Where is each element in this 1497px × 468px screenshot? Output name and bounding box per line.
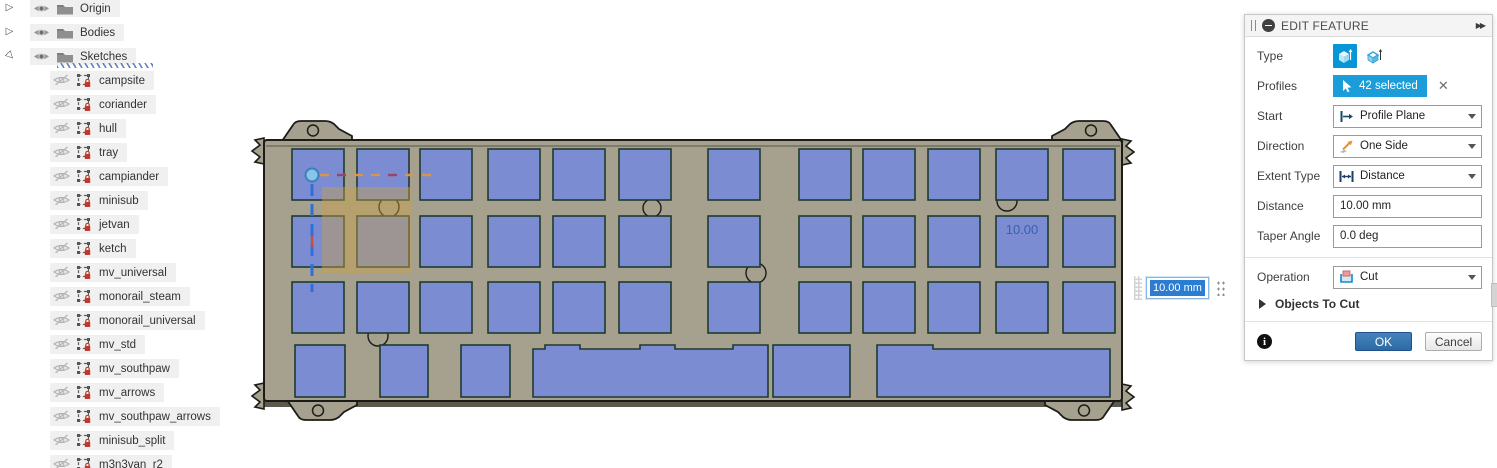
drag-handle-icon[interactable]	[1134, 276, 1142, 300]
sketch-icon	[76, 73, 93, 88]
hover-highlight-overlay	[322, 187, 412, 274]
field-profiles: Profiles 42 selected ✕	[1257, 75, 1482, 97]
tab-hole	[313, 405, 324, 416]
sketch-icon	[76, 121, 93, 136]
dimension-input-value: 10.00 mm	[1150, 280, 1205, 296]
tree-item-campsite[interactable]: campsite	[0, 68, 250, 92]
expand-panel-icon[interactable]: ▶▶	[1476, 21, 1486, 30]
tree-item-ketch[interactable]: ketch	[0, 236, 250, 260]
sketch-icon	[76, 313, 93, 328]
field-label: Type	[1257, 49, 1333, 63]
clear-selection-icon[interactable]: ✕	[1438, 78, 1449, 94]
visibility-off-icon[interactable]	[53, 170, 70, 182]
tree-item-label: mv_universal	[99, 266, 167, 279]
sketch-icon	[76, 457, 93, 468]
dialog-footer: i OK Cancel	[1257, 332, 1482, 351]
tab-hole	[1086, 125, 1097, 136]
select-value: Profile Plane	[1360, 110, 1425, 122]
profile-plane-icon	[1339, 110, 1354, 123]
tree-item-tray[interactable]: tray	[0, 140, 250, 164]
select-value: Distance	[1360, 170, 1405, 182]
taper-angle-input[interactable]: 0.0 deg	[1333, 225, 1482, 248]
sketch-icon	[76, 145, 93, 160]
switch-cutout[interactable]	[996, 282, 1048, 333]
grip-icon[interactable]	[1251, 20, 1256, 31]
sketch-icon	[76, 193, 93, 208]
sketch-icon	[76, 337, 93, 352]
switch-cutout[interactable]	[996, 149, 1048, 200]
visibility-off-icon[interactable]	[53, 98, 70, 110]
select-value: Cut	[1360, 271, 1378, 283]
tree-item-label: mv_std	[99, 338, 136, 351]
select-value: One Side	[1360, 140, 1408, 152]
tree-item-label: monorail_universal	[99, 314, 196, 327]
field-type: Type	[1257, 45, 1482, 67]
tree-item-minisub_split[interactable]: minisub_split	[0, 428, 250, 452]
tree-item-label: Sketches	[80, 50, 127, 63]
edit-feature-dialog: EDIT FEATURE ▶▶ Type Profiles 42 selecte…	[1244, 14, 1493, 361]
tree-item-sketches[interactable]: ▷ Sketches	[0, 44, 250, 68]
bottom-cutout[interactable]	[533, 345, 768, 397]
visibility-off-icon[interactable]	[53, 314, 70, 326]
screen-edge-tab[interactable]	[1491, 283, 1497, 307]
chevron-down-icon	[1468, 144, 1476, 149]
switch-cutout[interactable]	[863, 216, 915, 267]
plate-side-clip	[1122, 139, 1134, 165]
tree-item-label: campiander	[99, 170, 159, 183]
switch-cutout[interactable]	[553, 216, 605, 267]
tree-item-label: ketch	[99, 242, 127, 255]
chevron-down-icon	[1468, 114, 1476, 119]
more-options-handle-icon[interactable]	[1216, 280, 1226, 296]
visibility-on-icon[interactable]	[33, 27, 50, 38]
tree-item-m3n3van_r2[interactable]: m3n3van_r2	[0, 452, 250, 468]
folder-icon	[56, 2, 74, 15]
dimension-input[interactable]: 10.00 mm	[1146, 277, 1209, 299]
section-expander-icon	[1259, 299, 1266, 309]
switch-cutout[interactable]	[799, 149, 851, 200]
extrude-thin-icon[interactable]	[1362, 44, 1386, 68]
switch-cutout[interactable]	[420, 216, 472, 267]
tree-item-mv_southpaw_arrows[interactable]: mv_southpaw_arrows	[0, 404, 250, 428]
tree-item-mv_std[interactable]: mv_std	[0, 332, 250, 356]
distance-input[interactable]: 10.00 mm	[1333, 195, 1482, 218]
sketch-icon	[76, 241, 93, 256]
bottom-cutout[interactable]	[461, 345, 510, 397]
tree-item-label: monorail_steam	[99, 290, 181, 303]
sketch-icon	[76, 97, 93, 112]
tree-item-label: coriander	[99, 98, 147, 111]
chevron-down-icon	[1468, 174, 1476, 179]
dialog-header[interactable]: EDIT FEATURE ▶▶	[1245, 15, 1492, 37]
switch-cutout[interactable]	[863, 282, 915, 333]
cut-icon	[1339, 270, 1354, 284]
switch-cutout[interactable]	[1063, 216, 1115, 267]
switch-cutout[interactable]	[928, 282, 980, 333]
tree-item-label: Origin	[80, 2, 111, 15]
plate-side-clip	[1122, 384, 1134, 410]
tree-item-label: m3n3van_r2	[99, 458, 163, 468]
browser-tree: ▷ Origin ▷ Bodies ▷ Sketches	[0, 0, 250, 468]
dialog-title: EDIT FEATURE	[1281, 19, 1470, 33]
switch-cutout[interactable]	[619, 216, 671, 267]
switch-cutout[interactable]	[708, 149, 760, 200]
profiles-selected-count: 42 selected	[1359, 80, 1418, 92]
tree-item-monorail_universal[interactable]: monorail_universal	[0, 308, 250, 332]
switch-cutout[interactable]	[928, 216, 980, 267]
field-label: Profiles	[1257, 79, 1333, 93]
tree-item-campiander[interactable]: campiander	[0, 164, 250, 188]
field-label: Distance	[1257, 199, 1333, 213]
bottom-cutout[interactable]	[877, 345, 1110, 397]
switch-cutout[interactable]	[928, 149, 980, 200]
sketch-icon	[76, 361, 93, 376]
input-value: 10.00 mm	[1340, 200, 1391, 212]
tab-hole	[308, 125, 319, 136]
tree-item-minisub[interactable]: minisub	[0, 188, 250, 212]
field-extent-type: Extent Type Distance	[1257, 165, 1482, 187]
bottom-cutout[interactable]	[773, 345, 850, 397]
switch-cutout[interactable]	[420, 282, 472, 333]
tree-item-label: hull	[99, 122, 117, 135]
plate-side-clip	[252, 383, 264, 409]
switch-cutout[interactable]	[292, 282, 344, 333]
tree-item-label: mv_southpaw	[99, 362, 170, 375]
visibility-off-icon[interactable]	[53, 74, 70, 86]
chevron-down-icon	[1468, 275, 1476, 280]
sketch-icon	[76, 217, 93, 232]
folder-icon	[56, 50, 74, 63]
tree-item-label: mv_arrows	[99, 386, 155, 399]
one-side-icon	[1339, 140, 1354, 153]
sketch-origin-point[interactable]	[306, 169, 319, 182]
field-label: Taper Angle	[1257, 229, 1333, 243]
start-select[interactable]: Profile Plane	[1333, 105, 1482, 128]
divider	[1245, 321, 1492, 322]
field-distance: Distance 10.00 mm	[1257, 195, 1482, 217]
divider	[1245, 257, 1492, 258]
tree-item-bodies[interactable]: ▷ Bodies	[0, 20, 250, 44]
operation-select[interactable]: Cut	[1333, 266, 1482, 289]
expander-icon[interactable]: ▷	[3, 3, 16, 13]
sketch-icon	[76, 289, 93, 304]
tab-hole	[1079, 405, 1090, 416]
switch-cutout[interactable]	[619, 149, 671, 200]
switch-cutout[interactable]	[619, 282, 671, 333]
tree-item-label: campsite	[99, 74, 145, 87]
visibility-off-icon[interactable]	[53, 146, 70, 158]
bottom-cutout[interactable]	[380, 345, 428, 397]
input-value: 0.0 deg	[1340, 230, 1378, 242]
switch-cutout[interactable]	[488, 282, 540, 333]
visibility-off-icon[interactable]	[53, 266, 70, 278]
section-label: Objects To Cut	[1275, 297, 1359, 311]
expander-icon[interactable]: ▷	[3, 51, 16, 61]
visibility-off-icon[interactable]	[53, 386, 70, 398]
switch-cutout[interactable]	[553, 149, 605, 200]
tree-item-label: minisub_split	[99, 434, 165, 447]
tree-item-coriander[interactable]: coriander	[0, 92, 250, 116]
field-label: Direction	[1257, 139, 1333, 153]
tree-item-label: mv_southpaw_arrows	[99, 410, 211, 423]
profiles-selected-chip[interactable]: 42 selected	[1333, 75, 1427, 97]
tree-item-monorail_steam[interactable]: monorail_steam	[0, 284, 250, 308]
expander-icon[interactable]: ▷	[3, 27, 16, 37]
field-label: Operation	[1257, 270, 1333, 284]
sketch-icon	[76, 433, 93, 448]
field-operation: Operation Cut	[1257, 266, 1482, 288]
visibility-on-icon[interactable]	[33, 51, 50, 62]
plate-side-clip	[252, 138, 264, 164]
direction-select[interactable]: One Side	[1333, 135, 1482, 158]
field-label: Start	[1257, 109, 1333, 123]
switch-cutout[interactable]	[553, 282, 605, 333]
folder-icon	[56, 26, 74, 39]
field-label: Extent Type	[1257, 169, 1333, 183]
cursor-icon	[1342, 80, 1352, 93]
fusion360-screen: 10.00 ▷ Origin ▷ Bodies ▷ Sketches	[0, 0, 1497, 468]
tree-item-label: minisub	[99, 194, 139, 207]
tree-item-mv_universal[interactable]: mv_universal	[0, 260, 250, 284]
visibility-off-icon[interactable]	[53, 434, 70, 446]
tree-item-jetvan[interactable]: jetvan	[0, 212, 250, 236]
tree-item-mv_arrows[interactable]: mv_arrows	[0, 380, 250, 404]
visibility-on-icon[interactable]	[33, 3, 50, 14]
cancel-button[interactable]: Cancel	[1425, 332, 1482, 351]
visibility-off-icon[interactable]	[53, 338, 70, 350]
switch-cutout[interactable]	[799, 216, 851, 267]
extrude-solid-icon[interactable]	[1333, 44, 1357, 68]
objects-to-cut-section[interactable]: Objects To Cut	[1259, 297, 1482, 311]
switch-cutout[interactable]	[708, 216, 760, 267]
visibility-off-icon[interactable]	[53, 218, 70, 230]
tree-item-mv_southpaw[interactable]: mv_southpaw	[0, 356, 250, 380]
extrude-distance-label: 10.00	[1006, 222, 1039, 237]
tree-item-label: jetvan	[99, 218, 130, 231]
switch-cutout[interactable]	[1063, 149, 1115, 200]
switch-cutout[interactable]	[799, 282, 851, 333]
switch-cutout[interactable]	[708, 282, 760, 333]
extent-type-select[interactable]: Distance	[1333, 165, 1482, 188]
visibility-off-icon[interactable]	[53, 242, 70, 254]
collapse-icon[interactable]	[1262, 19, 1275, 32]
tree-item-label: tray	[99, 146, 118, 159]
visibility-off-icon[interactable]	[53, 410, 70, 422]
bottom-cutout[interactable]	[295, 345, 345, 397]
visibility-off-icon[interactable]	[53, 458, 70, 468]
info-icon[interactable]: i	[1257, 334, 1272, 349]
distance-icon	[1339, 170, 1354, 183]
dimension-manipulator: 10.00 mm	[1134, 276, 1226, 300]
visibility-off-icon[interactable]	[53, 290, 70, 302]
field-start: Start Profile Plane	[1257, 105, 1482, 127]
switch-cutout[interactable]	[357, 282, 409, 333]
field-direction: Direction One Side	[1257, 135, 1482, 157]
switch-cutout[interactable]	[488, 149, 540, 200]
visibility-off-icon[interactable]	[53, 122, 70, 134]
switch-cutout[interactable]	[863, 149, 915, 200]
switch-cutout[interactable]	[1063, 282, 1115, 333]
tree-item-origin[interactable]: ▷ Origin	[0, 0, 250, 20]
field-taper-angle: Taper Angle 0.0 deg	[1257, 225, 1482, 247]
tree-item-hull[interactable]: hull	[0, 116, 250, 140]
sketch-icon	[76, 265, 93, 280]
visibility-off-icon[interactable]	[53, 194, 70, 206]
sketch-icon	[76, 385, 93, 400]
tree-item-label: Bodies	[80, 26, 115, 39]
switch-cutout[interactable]	[488, 216, 540, 267]
sketch-icon	[76, 409, 93, 424]
visibility-off-icon[interactable]	[53, 362, 70, 374]
ok-button[interactable]: OK	[1355, 332, 1412, 351]
sketch-icon	[76, 169, 93, 184]
